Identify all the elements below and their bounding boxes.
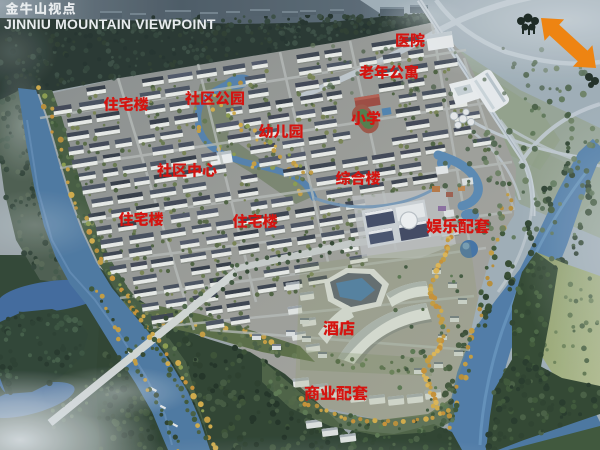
svg-text:JINNIU MOUNTAIN VIEWPOINT: JINNIU MOUNTAIN VIEWPOINT <box>4 16 216 32</box>
